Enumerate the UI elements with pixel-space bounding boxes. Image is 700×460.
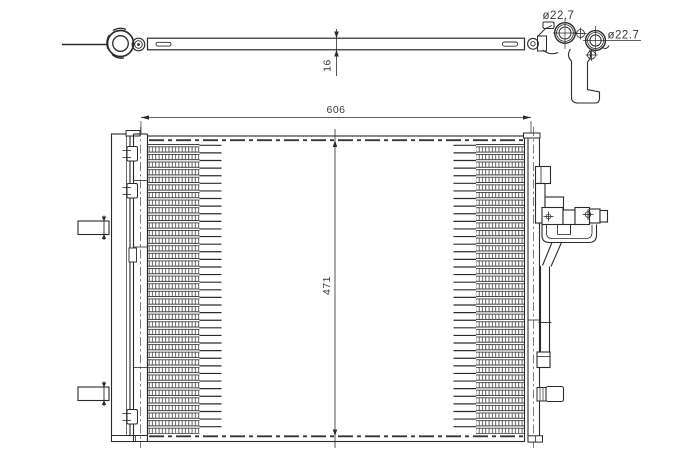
drier-end-cap [537, 352, 550, 368]
port-circle-top [553, 19, 578, 50]
top-profile-view: 16 [62, 10, 641, 103]
condenser-technical-drawing: 16 [0, 0, 700, 460]
main-front-view: 606 [78, 104, 608, 448]
diagonal-pipe [543, 243, 562, 267]
right-connection-assembly [536, 167, 608, 402]
port-top-diameter-label: ø22.7 [543, 10, 575, 22]
lower-right-bracket [537, 387, 564, 402]
right-fin-band [476, 144, 525, 434]
port-side-diameter-label: ø22.7 [608, 30, 640, 42]
left-bracket-lower [78, 382, 109, 407]
left-bracket-upper [78, 216, 109, 241]
left-tank [134, 127, 148, 448]
bolt-circle-1 [575, 28, 587, 40]
coupling-ring [528, 38, 539, 49]
upper-tab [536, 167, 551, 184]
condenser-core [148, 136, 525, 442]
left-fin-band [148, 144, 200, 434]
drawing-canvas: 16 [0, 0, 700, 460]
dim-depth-label: 16 [322, 59, 334, 72]
connector-block [542, 208, 608, 225]
dim-width-label: 606 [326, 104, 345, 116]
dim-height-label: 471 [321, 276, 333, 295]
profile-body-bar [148, 38, 525, 50]
elbow-flange [542, 225, 597, 243]
left-plate-foot [112, 436, 149, 442]
grommet-ring [107, 28, 134, 58]
profile-right-fitting: ø22.7 ø22.7 [528, 10, 641, 103]
left-side-plate [112, 131, 149, 442]
dimension-depth-16: 16 [322, 29, 339, 76]
dimension-width-606: 606 [141, 104, 531, 134]
